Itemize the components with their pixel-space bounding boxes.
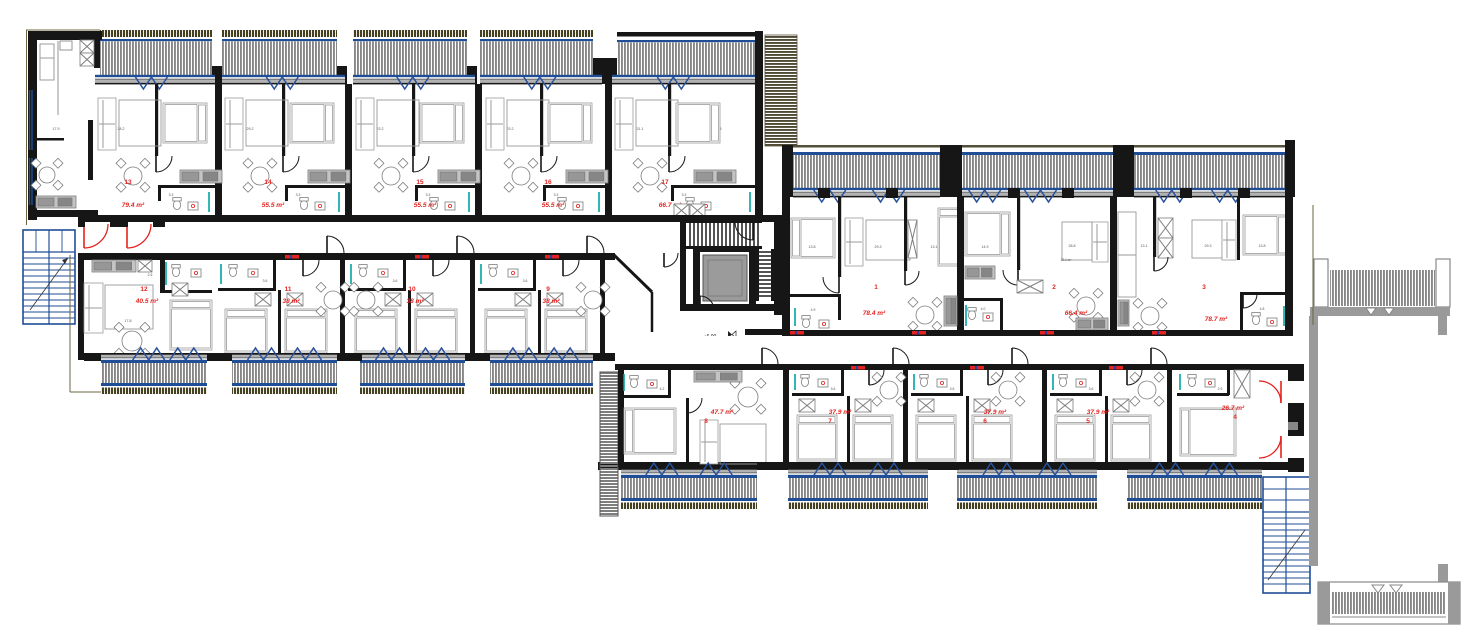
svg-text:29.3: 29.3 <box>875 245 882 249</box>
svg-text:7: 7 <box>828 418 832 425</box>
svg-text:38 m²: 38 m² <box>543 298 561 305</box>
svg-text:4.2: 4.2 <box>660 387 665 391</box>
svg-text:28.8: 28.8 <box>1069 244 1076 248</box>
svg-text:47.7 m²: 47.7 m² <box>710 409 734 416</box>
svg-text:79.4 m²: 79.4 m² <box>122 202 145 209</box>
svg-text:55.5 m²: 55.5 m² <box>414 202 437 209</box>
svg-text:3.3: 3.3 <box>554 193 559 197</box>
svg-text:3.6: 3.6 <box>523 279 528 283</box>
svg-text:17.8: 17.8 <box>125 319 132 323</box>
svg-text:3.3: 3.3 <box>296 193 301 197</box>
svg-text:78.4 m²: 78.4 m² <box>863 310 886 317</box>
svg-text:5: 5 <box>1086 418 1090 425</box>
svg-text:26.7 m²: 26.7 m² <box>1221 405 1245 412</box>
svg-text:13: 13 <box>124 179 132 186</box>
svg-text:23.2: 23.2 <box>377 127 384 131</box>
svg-text:2: 2 <box>1052 284 1056 291</box>
svg-text:40.5 m²: 40.5 m² <box>135 298 159 305</box>
svg-text:13.8: 13.8 <box>809 245 816 249</box>
svg-text:14: 14 <box>264 179 272 186</box>
svg-text:4.9: 4.9 <box>811 308 816 312</box>
svg-text:13.8: 13.8 <box>1259 244 1266 248</box>
svg-text:66.4 m²: 66.4 m² <box>1065 310 1088 317</box>
svg-text:31.1: 31.1 <box>637 127 644 131</box>
svg-text:3.6: 3.6 <box>950 387 955 391</box>
svg-text:16: 16 <box>544 179 552 186</box>
svg-text:2.6: 2.6 <box>148 273 153 277</box>
svg-text:17.9: 17.9 <box>53 127 60 131</box>
svg-text:2.9: 2.9 <box>1218 387 1223 391</box>
svg-text:3.6: 3.6 <box>831 387 836 391</box>
svg-text:12: 12 <box>140 286 148 293</box>
svg-text:13.1: 13.1 <box>1141 244 1148 248</box>
svg-text:55.5 m²: 55.5 m² <box>542 202 565 209</box>
svg-text:15: 15 <box>416 179 424 186</box>
svg-text:29.2: 29.2 <box>247 127 254 131</box>
svg-text:3.3: 3.3 <box>169 193 174 197</box>
svg-text:37.9 m²: 37.9 m² <box>1087 409 1110 416</box>
svg-text:37.9 m²: 37.9 m² <box>984 409 1007 416</box>
svg-text:37.9 m²: 37.9 m² <box>829 409 852 416</box>
svg-text:3: 3 <box>1202 284 1206 291</box>
svg-text:3.3: 3.3 <box>426 193 431 197</box>
svg-text:17: 17 <box>661 179 669 186</box>
svg-text:38 m²: 38 m² <box>283 298 301 305</box>
svg-text:13.1: 13.1 <box>931 245 938 249</box>
svg-text:10: 10 <box>408 286 416 293</box>
svg-text:3.6: 3.6 <box>1089 387 1094 391</box>
svg-text:55.5 m²: 55.5 m² <box>262 202 285 209</box>
svg-text:6: 6 <box>983 418 987 425</box>
svg-text:78.7 m²: 78.7 m² <box>1205 316 1228 323</box>
svg-text:11: 11 <box>285 286 292 293</box>
svg-text:3.6: 3.6 <box>263 279 268 283</box>
svg-text:4.8: 4.8 <box>1260 307 1265 311</box>
svg-text:4: 4 <box>1233 414 1237 421</box>
svg-text:32.1 m²: 32.1 m² <box>1061 258 1072 262</box>
svg-text:8: 8 <box>704 418 708 425</box>
svg-text:38 m²: 38 m² <box>407 298 425 305</box>
svg-text:23.2: 23.2 <box>507 127 514 131</box>
svg-text:3.3: 3.3 <box>682 193 687 197</box>
svg-text:9: 9 <box>546 286 550 293</box>
svg-text:3.6: 3.6 <box>393 279 398 283</box>
svg-text:1: 1 <box>874 284 878 291</box>
svg-text:14.9: 14.9 <box>982 245 989 249</box>
svg-text:29.3: 29.3 <box>1205 244 1212 248</box>
svg-text:4.0: 4.0 <box>981 307 986 311</box>
